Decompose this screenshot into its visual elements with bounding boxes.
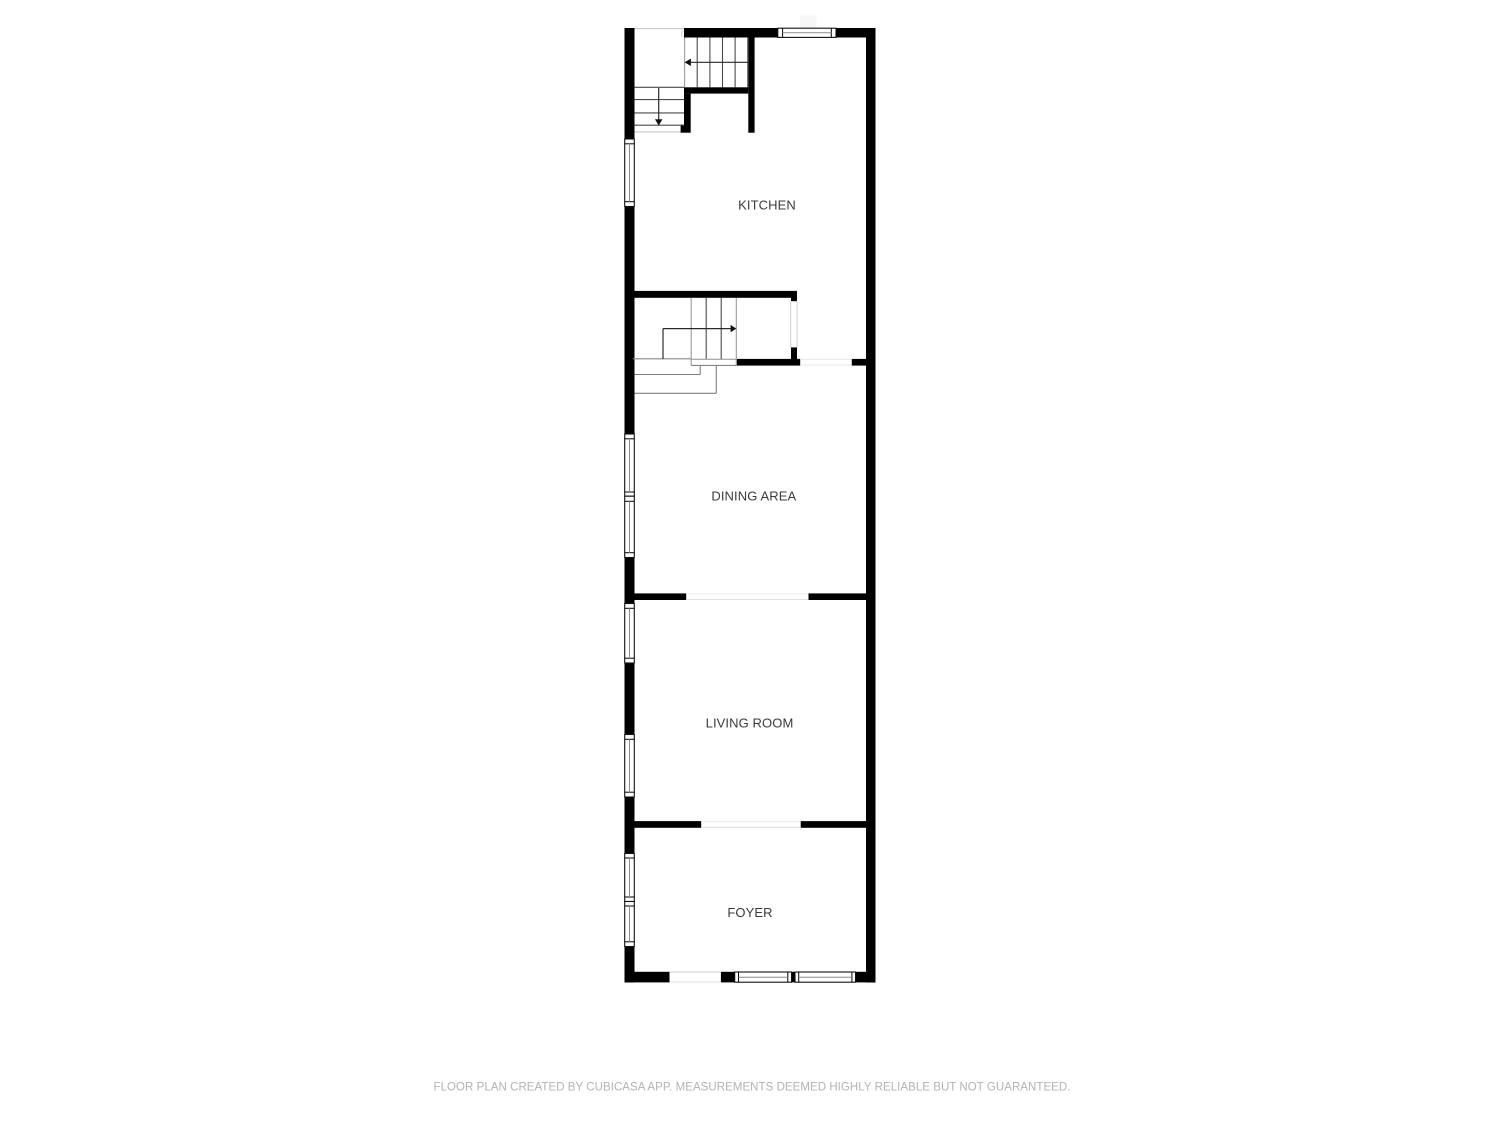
svg-text:FOYER: FOYER [727, 905, 772, 920]
svg-text:KITCHEN: KITCHEN [738, 197, 796, 212]
svg-text:FLOOR PLAN CREATED BY CUBICASA: FLOOR PLAN CREATED BY CUBICASA APP. MEAS… [434, 1082, 1071, 1094]
svg-text:DINING AREA: DINING AREA [711, 488, 796, 503]
svg-text:LIVING ROOM: LIVING ROOM [706, 715, 794, 730]
